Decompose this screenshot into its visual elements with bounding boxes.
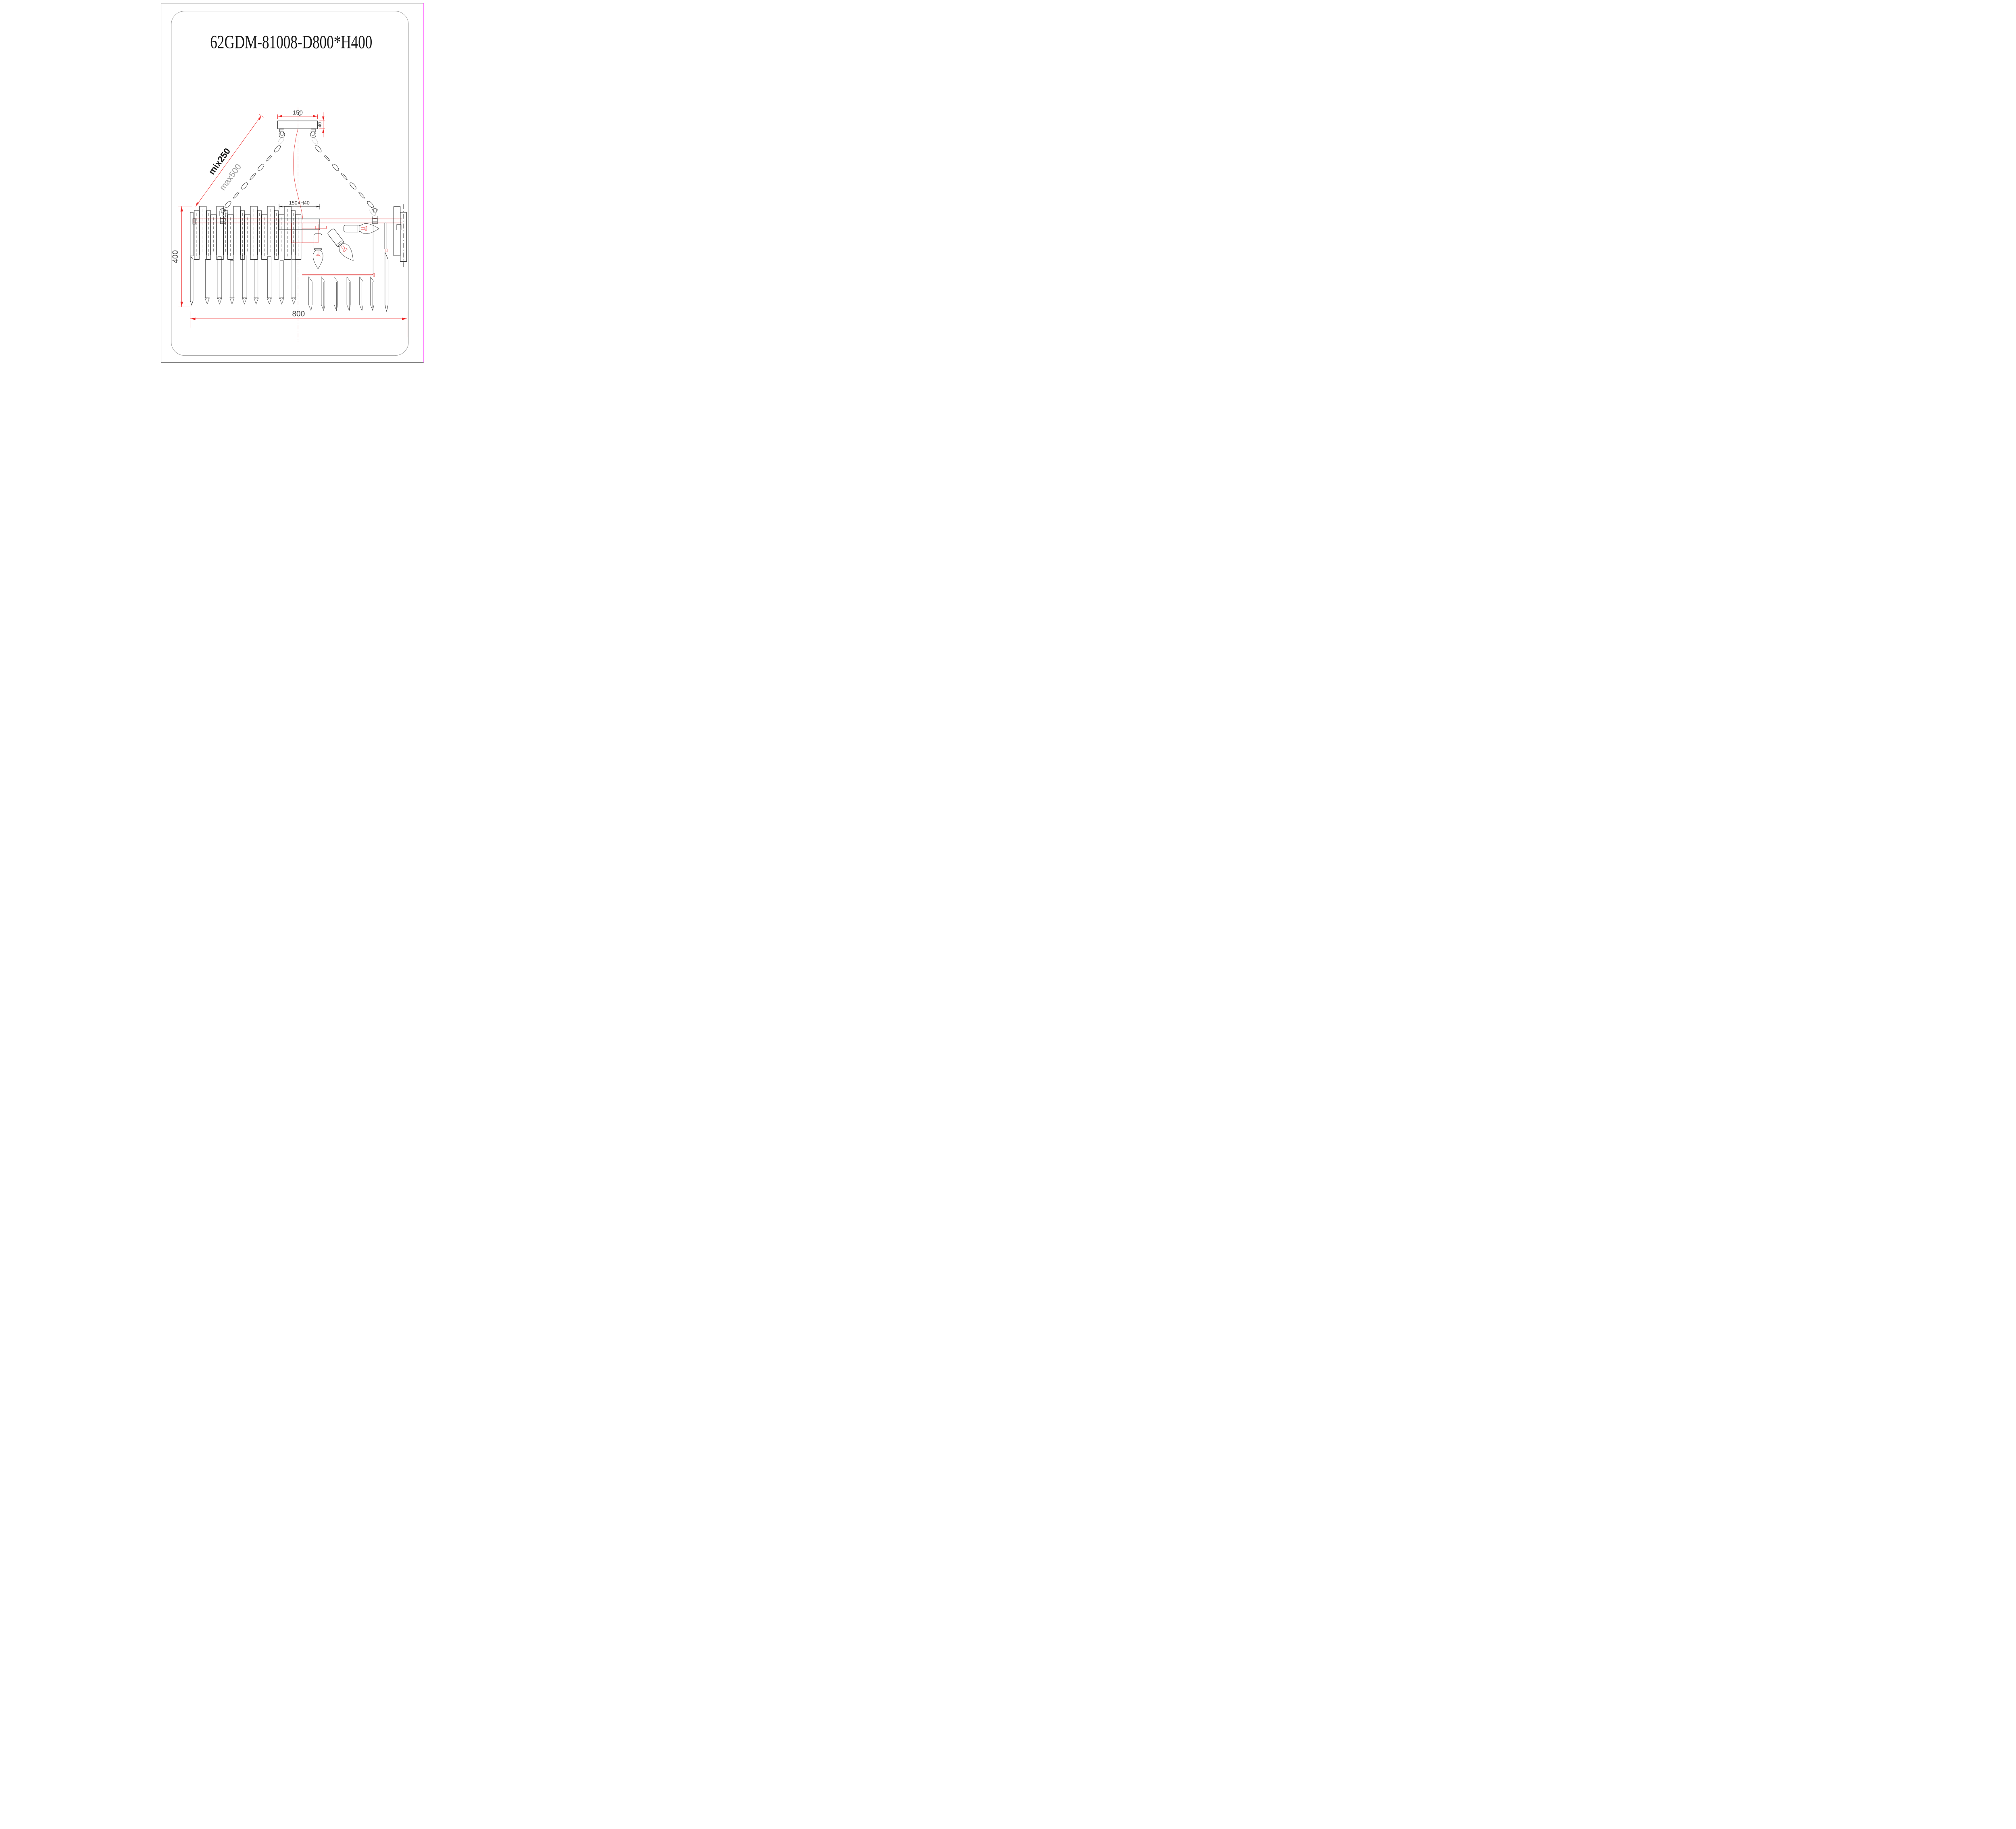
dim-body-diameter: 800	[190, 310, 407, 337]
rim-plate-outer	[394, 206, 400, 256]
crystal-pendant	[334, 277, 338, 310]
crystal-pendant	[205, 259, 209, 304]
crystal-bar	[217, 206, 223, 260]
canopy-stud-left	[277, 129, 285, 145]
dim-label-40: 40	[318, 122, 323, 127]
chain-link	[224, 200, 232, 209]
crystal-bar-row	[194, 206, 301, 260]
ghost-link-icon	[277, 137, 285, 145]
chain-link	[341, 173, 348, 180]
chain-link	[358, 192, 365, 199]
crystal-pendant	[360, 277, 363, 310]
side-plate-left	[190, 212, 193, 305]
crystal-pendant	[371, 277, 374, 310]
crystal-bar	[211, 215, 217, 255]
dim-suspension: mix250 max500	[196, 114, 263, 206]
dim-label-150: 150	[293, 109, 303, 116]
chandelier-technical-drawing: 62GDM-81008-D800*H400 1	[0, 0, 585, 366]
crystal-bar	[228, 215, 233, 259]
crystal-bar	[194, 210, 199, 259]
dim-label-max500: max500	[218, 162, 244, 192]
crystal-pendant	[279, 260, 284, 304]
right-section	[292, 223, 388, 312]
rod-end-cap	[373, 273, 375, 277]
chain-link	[240, 182, 248, 190]
bulb-vertical	[313, 234, 323, 269]
crystal-pendant	[347, 277, 350, 310]
chain-link	[314, 145, 322, 153]
crystal-pendant	[267, 256, 271, 304]
crystal-pendant	[217, 256, 222, 304]
crystal-bar	[279, 215, 284, 255]
crystal-bar	[200, 206, 206, 255]
dim-label-400: 400	[171, 250, 180, 263]
bulb-horizontal	[344, 223, 379, 233]
crystal-bar	[275, 210, 279, 259]
crystal-pendant	[292, 259, 296, 304]
drawing-title: 62GDM-81008-D800*H400	[210, 31, 372, 52]
crystal-pendant	[254, 259, 258, 304]
dim-label-800: 800	[292, 310, 305, 319]
crystal-bar	[224, 210, 228, 255]
crystal-bar	[267, 206, 274, 255]
crystal-pendant	[321, 277, 325, 310]
chain-right	[314, 145, 375, 209]
chain-link	[349, 182, 357, 190]
crystal-bar	[292, 210, 296, 255]
crystal-bar	[241, 210, 245, 259]
crystal-bar	[233, 206, 240, 255]
wiring-feed-horizontal	[315, 226, 326, 229]
center-mount-box	[279, 219, 320, 230]
chain-link	[323, 154, 330, 162]
crystal-bar	[207, 210, 211, 259]
long-crystal-pendant	[385, 252, 388, 311]
wiring-path	[302, 224, 318, 243]
chain-link	[249, 173, 256, 180]
dim-center-mount: 150×H40	[279, 200, 320, 209]
crystal-bar	[250, 206, 257, 260]
drawing-page: 62GDM-81008-D800*H400 1	[0, 0, 585, 366]
crystal-pendant	[242, 255, 247, 304]
dim-canopy-width: 150	[277, 109, 317, 119]
side-pendant-left	[190, 256, 193, 305]
crystal-bar	[258, 210, 262, 255]
ring-connector-right	[369, 208, 378, 224]
wire-rod	[372, 223, 373, 275]
canopy-plate	[277, 121, 317, 129]
crystal-pendant	[230, 260, 234, 304]
crystal-pendants-right	[308, 277, 374, 310]
dim-body-height: 400	[171, 206, 192, 307]
dim-label-150xH40: 150×H40	[289, 200, 310, 206]
dim-canopy-height: 40	[318, 112, 325, 137]
ghost-link-icon	[311, 137, 319, 145]
pendant-hook-tab	[386, 249, 387, 252]
chain-link	[273, 144, 281, 153]
canopy-stud-right	[310, 129, 319, 145]
bulb-diagonal	[326, 227, 358, 264]
power-cord	[293, 129, 303, 223]
page-border	[161, 3, 424, 362]
chain-link	[331, 163, 339, 172]
crystal-bar	[245, 215, 250, 255]
chain-link	[366, 200, 374, 209]
crystal-pendants-left	[205, 255, 296, 304]
crystal-bar	[284, 206, 291, 260]
chain-link	[266, 154, 273, 162]
crystal-bar	[262, 215, 267, 259]
side-plates-right	[394, 204, 406, 269]
crystal-pendant	[308, 277, 312, 310]
crystal-bar	[296, 215, 301, 259]
chain-link	[233, 192, 240, 199]
chain-link	[257, 163, 265, 171]
pendant-hanger-rod	[385, 223, 386, 249]
